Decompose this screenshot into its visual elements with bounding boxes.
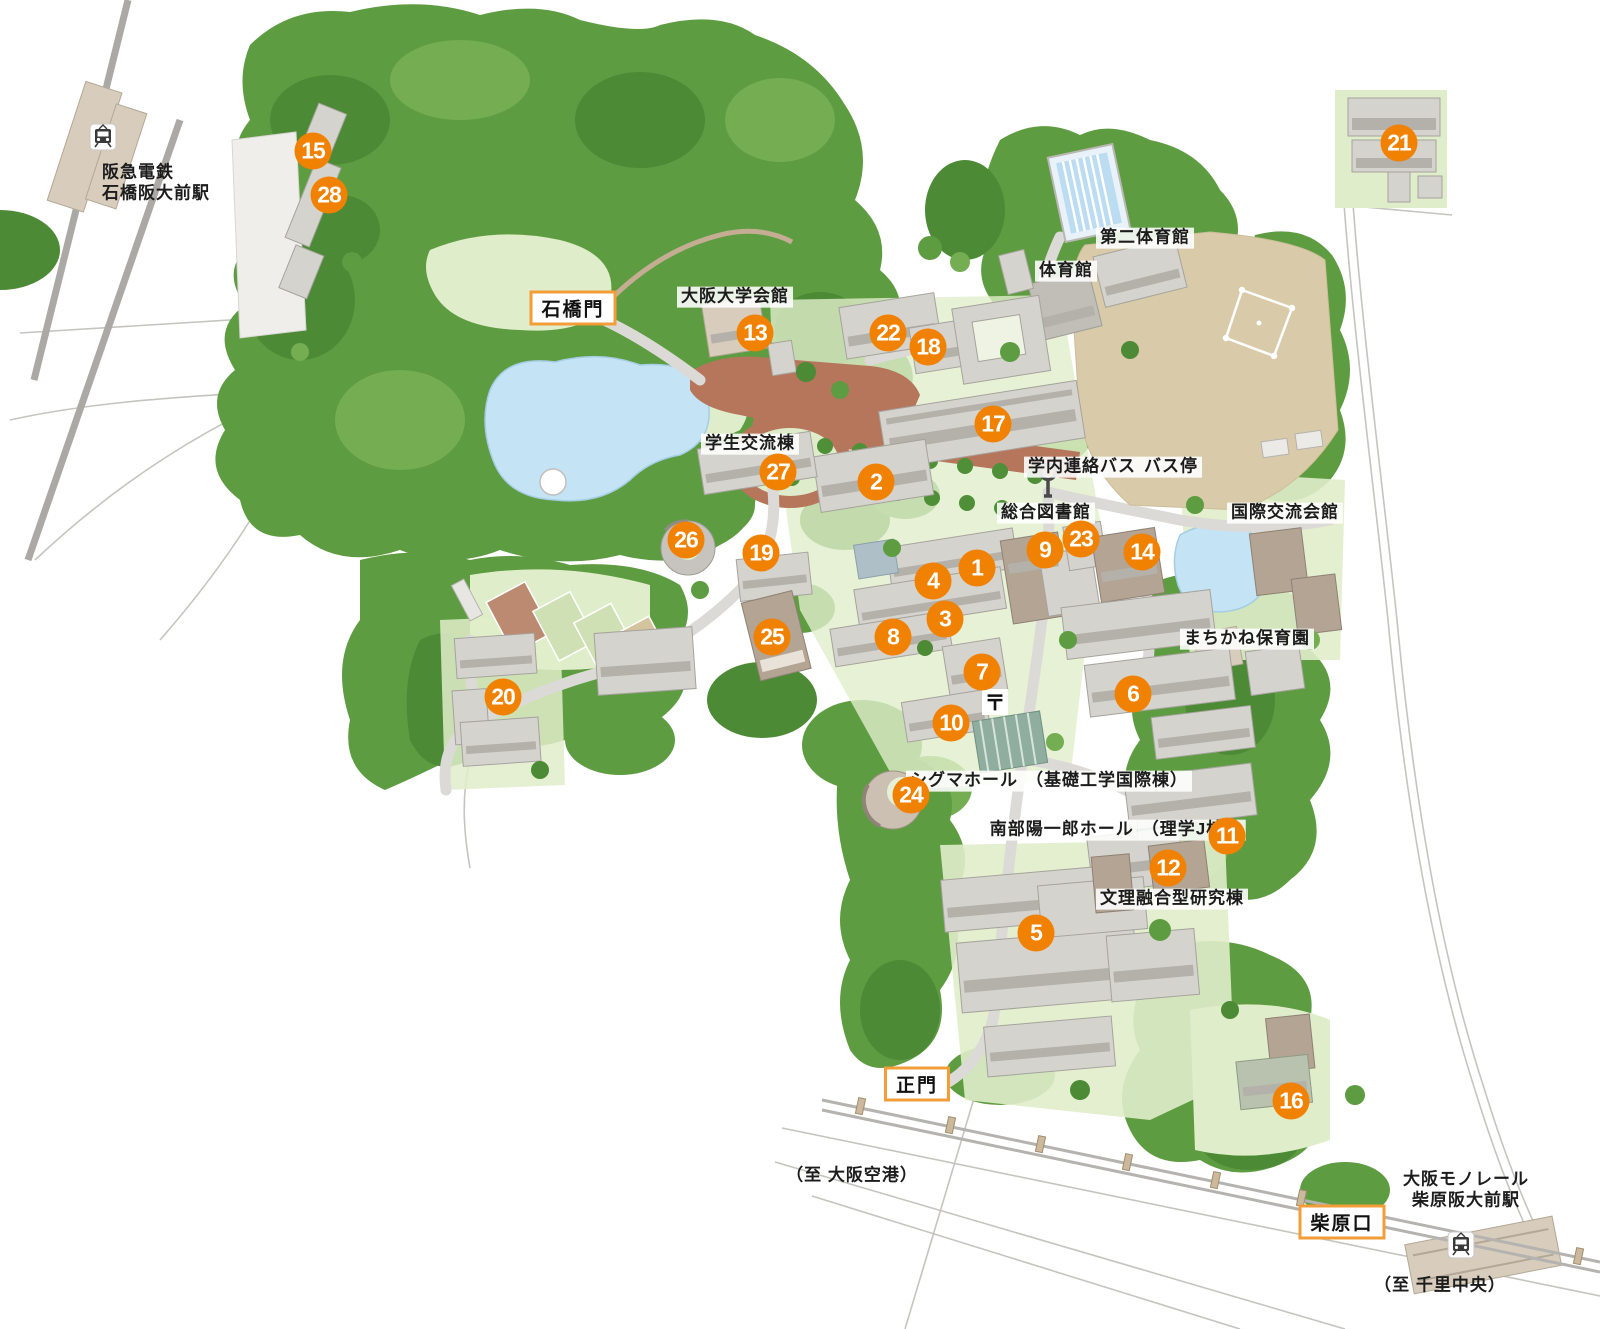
map-marker-24[interactable]: 24 (893, 777, 930, 814)
map-overlay: 阪急電鉄石橋阪大前駅大阪大学会館学生交流棟体育館第二体育館学内連絡バスバス停総合… (0, 0, 1600, 1329)
map-marker-16[interactable]: 16 (1273, 1083, 1310, 1120)
campus-map: 阪急電鉄石橋阪大前駅大阪大学会館学生交流棟体育館第二体育館学内連絡バスバス停総合… (0, 0, 1600, 1329)
label-to-osaka-airport: （至 大阪空港） (786, 1166, 918, 1187)
map-marker-25[interactable]: 25 (754, 619, 791, 656)
gate-shibahara: 柴原口 (1298, 1205, 1385, 1240)
gate-ishibashi: 石橋門 (529, 291, 616, 326)
map-marker-18[interactable]: 18 (910, 329, 947, 366)
map-marker-17[interactable]: 17 (975, 406, 1012, 443)
label-machikane-nursery: まちかね保育園 (1180, 629, 1314, 650)
gate-main: 正門 (884, 1067, 950, 1102)
label-intl-house: 国際交流会館 (1227, 503, 1343, 524)
label-to-senri-chuo: （至 千里中央） (1374, 1276, 1506, 1297)
map-marker-8[interactable]: 8 (875, 619, 912, 656)
map-marker-22[interactable]: 22 (870, 315, 907, 352)
label-gym2: 第二体育館 (1096, 228, 1194, 249)
label-shuttle-bus-stop: 学内連絡バスバス停 (1024, 457, 1202, 478)
map-marker-9[interactable]: 9 (1027, 532, 1064, 569)
label-student-exchange-bldg: 学生交流棟 (701, 434, 799, 455)
map-marker-12[interactable]: 12 (1150, 850, 1187, 887)
label-nambu-hall: 南部陽一郎ホール（理学J棟） (986, 820, 1246, 841)
label-gym: 体育館 (1035, 261, 1097, 282)
map-marker-2[interactable]: 2 (858, 464, 895, 501)
map-marker-15[interactable]: 15 (295, 133, 332, 170)
map-marker-11[interactable]: 11 (1209, 818, 1246, 855)
map-marker-13[interactable]: 13 (737, 315, 774, 352)
map-marker-1[interactable]: 1 (959, 550, 996, 587)
map-marker-4[interactable]: 4 (915, 563, 952, 600)
map-marker-19[interactable]: 19 (743, 535, 780, 572)
label-monorail-station: 大阪モノレール柴原阪大前駅 (1403, 1169, 1529, 1210)
map-marker-6[interactable]: 6 (1115, 676, 1152, 713)
map-marker-28[interactable]: 28 (311, 177, 348, 214)
map-marker-21[interactable]: 21 (1381, 125, 1418, 162)
map-marker-3[interactable]: 3 (927, 601, 964, 638)
label-sigma-hall: シグマホール（基礎工学国際棟） (906, 771, 1192, 792)
map-marker-7[interactable]: 7 (964, 654, 1001, 691)
map-marker-23[interactable]: 23 (1063, 521, 1100, 558)
label-osaka-univ-hall: 大阪大学会館 (677, 287, 793, 308)
map-marker-5[interactable]: 5 (1018, 915, 1055, 952)
map-marker-26[interactable]: 26 (668, 522, 705, 559)
label-hankyu-station: 阪急電鉄石橋阪大前駅 (102, 162, 210, 203)
map-marker-27[interactable]: 27 (760, 454, 797, 491)
map-marker-10[interactable]: 10 (933, 705, 970, 742)
map-marker-20[interactable]: 20 (485, 679, 522, 716)
map-marker-14[interactable]: 14 (1124, 534, 1161, 571)
post-office-icon: 〒 (982, 689, 1008, 715)
label-bunri-research-bldg: 文理融合型研究棟 (1096, 889, 1248, 910)
